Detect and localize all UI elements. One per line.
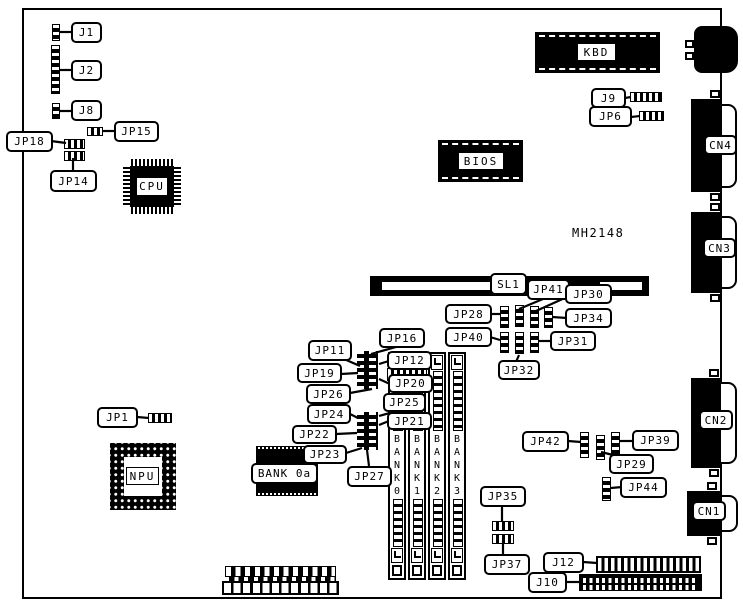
label-jp16: JP16 — [379, 328, 425, 348]
motherboard-jumper-diagram: MH2148 CPU NPU KBD BIOS — [0, 0, 743, 606]
label-cn4: CN4 — [704, 135, 737, 155]
label-jp37: JP37 — [484, 554, 530, 575]
label-jp32: JP32 — [498, 360, 540, 380]
label-jp11: JP11 — [308, 340, 352, 361]
label-jp25: JP25 — [383, 393, 426, 412]
label-jp12: JP12 — [387, 351, 432, 370]
label-jp39: JP39 — [632, 430, 679, 451]
label-jp40: JP40 — [445, 327, 492, 347]
label-j12: J12 — [543, 552, 584, 573]
label-jp21: JP21 — [387, 412, 432, 430]
label-jp1: JP1 — [97, 407, 138, 428]
label-jp26: JP26 — [306, 384, 351, 404]
label-bank0a: BANK 0a — [251, 463, 318, 484]
label-jp27: JP27 — [347, 466, 392, 487]
label-jp34: JP34 — [565, 308, 612, 328]
label-j10: J10 — [528, 572, 567, 593]
label-jp31: JP31 — [550, 331, 596, 351]
label-jp35: JP35 — [480, 486, 526, 507]
label-j8: J8 — [71, 100, 102, 121]
label-jp44: JP44 — [620, 477, 667, 498]
label-jp23: JP23 — [303, 445, 347, 464]
label-jp15: JP15 — [114, 121, 159, 142]
leader-lines — [0, 0, 743, 606]
label-jp28: JP28 — [445, 304, 492, 324]
label-j2: J2 — [71, 60, 102, 81]
label-j1: J1 — [71, 22, 102, 43]
label-jp29: JP29 — [609, 454, 654, 474]
label-cn2: CN2 — [699, 410, 733, 430]
label-jp42: JP42 — [522, 431, 569, 452]
label-jp20: JP20 — [388, 374, 433, 393]
label-jp41: JP41 — [527, 279, 570, 300]
label-sl1: SL1 — [490, 273, 527, 295]
label-jp14: JP14 — [50, 170, 97, 192]
label-cn1: CN1 — [692, 501, 726, 521]
label-cn3: CN3 — [703, 238, 736, 258]
label-j9: J9 — [591, 88, 626, 108]
label-jp30: JP30 — [565, 284, 612, 304]
label-jp24: JP24 — [307, 404, 351, 424]
label-jp18: JP18 — [6, 131, 53, 152]
label-jp22: JP22 — [292, 425, 337, 444]
label-jp6: JP6 — [589, 106, 632, 127]
label-jp19: JP19 — [297, 363, 342, 383]
